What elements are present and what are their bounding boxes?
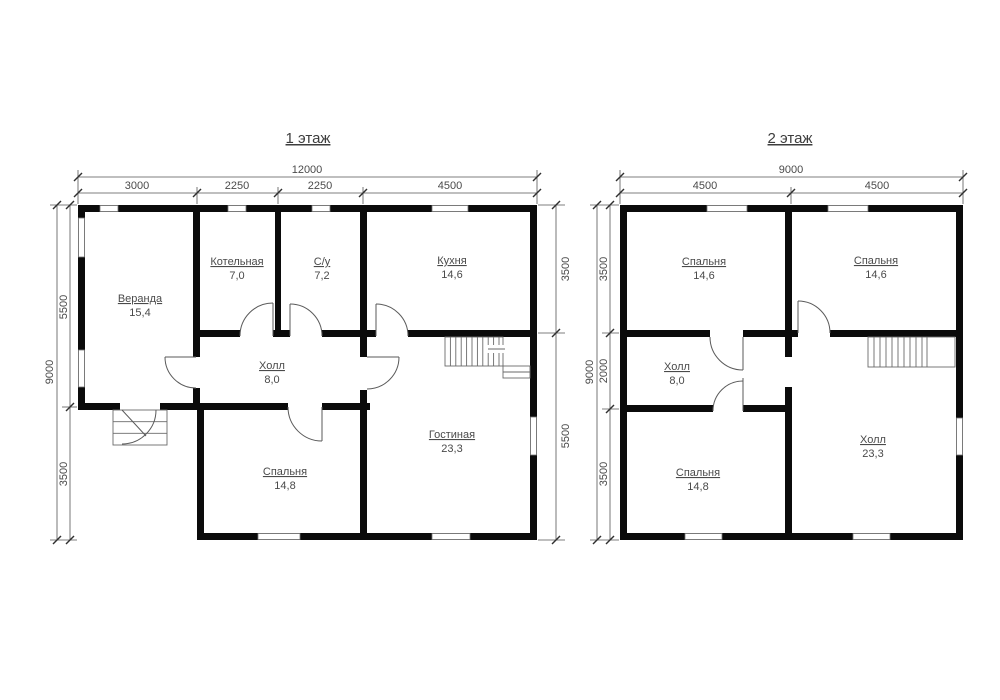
dim-label: 4500 xyxy=(865,180,889,192)
window xyxy=(707,206,747,212)
door-bedroom2 xyxy=(798,301,830,333)
room-area: 8,0 xyxy=(669,375,684,387)
room-label-bedroom1: Спальня 14,6 xyxy=(682,256,726,282)
room-label-hall-small: Холл 8,0 xyxy=(664,361,690,387)
floor2-dim-left: 9000 3500 2000 3500 xyxy=(584,201,619,544)
window xyxy=(79,350,85,387)
room-name: Веранда xyxy=(118,293,163,305)
floor1-dim-left: 9000 5500 3500 xyxy=(44,201,77,544)
room-label-kitchen: Кухня 14,6 xyxy=(437,255,466,281)
room-name: Спальня xyxy=(682,256,726,268)
dim-label: 9000 xyxy=(779,164,803,176)
door-arc xyxy=(288,407,322,441)
room-name: С/у xyxy=(314,256,331,268)
room-area: 23,3 xyxy=(441,443,462,455)
window xyxy=(228,206,246,212)
door-veranda-hall xyxy=(165,357,196,388)
dim-label: 3000 xyxy=(125,180,149,192)
door-hall-living xyxy=(367,357,399,389)
room-area: 14,8 xyxy=(687,481,708,493)
window xyxy=(957,418,963,455)
room-name: Спальня xyxy=(854,255,898,267)
door-veranda-exterior xyxy=(113,410,167,445)
wall-veranda-right xyxy=(193,205,200,403)
dim-label: 2000 xyxy=(598,359,610,383)
floor2-staircase xyxy=(868,337,955,367)
door-bedroom1-hall xyxy=(710,337,743,370)
room-area: 14,6 xyxy=(693,270,714,282)
door-bathroom xyxy=(290,304,322,336)
dim-label: 4500 xyxy=(438,180,462,192)
dim-label: 5500 xyxy=(58,295,70,319)
door-arc xyxy=(165,357,196,388)
dim-label: 3500 xyxy=(598,257,610,281)
floor2-dim-top: 9000 4500 4500 xyxy=(616,164,967,204)
room-label-hall: Холл 8,0 xyxy=(259,360,285,386)
room-area: 14,6 xyxy=(865,269,886,281)
door-boiler xyxy=(240,303,273,336)
stair-outline xyxy=(868,337,955,367)
window xyxy=(312,206,330,212)
door-arc xyxy=(798,301,830,333)
floor2-doors xyxy=(710,301,830,411)
door-arc xyxy=(367,357,399,389)
floor2-plan: 2 этаж xyxy=(584,130,967,544)
window xyxy=(432,534,470,540)
room-area: 15,4 xyxy=(129,307,150,319)
porch-steps xyxy=(113,410,167,445)
room-area: 14,6 xyxy=(441,269,462,281)
dim-label: 9000 xyxy=(584,360,596,384)
wall-boiler-bathroom xyxy=(275,205,281,336)
room-name: Спальня xyxy=(676,467,720,479)
dim-label: 3500 xyxy=(58,462,70,486)
room-label-hall-big: Холл 23,3 xyxy=(860,434,886,460)
wall-outer-left xyxy=(620,205,627,540)
window xyxy=(258,534,300,540)
floorplan-drawing: 1 этаж xyxy=(0,0,1000,700)
dim-label: 3500 xyxy=(598,462,610,486)
wall-veranda-hall-bottom xyxy=(78,403,370,410)
door-arc xyxy=(290,304,322,336)
floor1-dim-right: 3500 5500 xyxy=(538,201,572,544)
door-arc xyxy=(713,381,743,411)
wall-outer-right xyxy=(530,205,537,540)
room-name: Холл xyxy=(860,434,886,446)
door-kitchen xyxy=(376,304,408,336)
door-hall-bedroom3 xyxy=(713,378,743,411)
room-name: Холл xyxy=(259,360,285,372)
wall-hall-living xyxy=(360,336,367,540)
door-arc xyxy=(376,304,408,336)
door-arc xyxy=(710,337,743,370)
room-label-living: Гостиная 23,3 xyxy=(429,429,475,455)
dim-label: 3500 xyxy=(560,257,572,281)
window xyxy=(79,218,85,257)
floor1-walls xyxy=(78,205,537,540)
wall-bathroom-kitchen xyxy=(360,205,367,336)
door-arc xyxy=(240,303,273,336)
window xyxy=(853,534,890,540)
floor1-room-labels: Веранда 15,4 Котельная 7,0 С/у 7,2 Кухня… xyxy=(118,255,475,492)
wall-bedrooms-bottom xyxy=(620,330,963,337)
room-area: 8,0 xyxy=(264,374,279,386)
floor1-plan: 1 этаж xyxy=(44,130,572,544)
wall-bedroom-left xyxy=(197,403,204,540)
dim-label: 2250 xyxy=(308,180,332,192)
floor1-dim-top: 12000 3000 2250 2250 4500 xyxy=(74,164,541,204)
room-label-bedroom2: Спальня 14,6 xyxy=(854,255,898,281)
room-label-bedroom: Спальня 14,8 xyxy=(263,466,307,492)
window xyxy=(432,206,468,212)
room-label-bathroom: С/у 7,2 xyxy=(314,256,331,282)
dim-label: 2250 xyxy=(225,180,249,192)
floor1-staircase xyxy=(445,337,530,378)
floor2-title: 2 этаж xyxy=(768,130,813,147)
wall-hall-bottom xyxy=(620,405,792,412)
room-name: Котельная xyxy=(210,256,263,268)
floorplan-canvas: 1 этаж xyxy=(0,0,1000,700)
room-label-veranda: Веранда 15,4 xyxy=(118,293,163,319)
room-label-boiler: Котельная 7,0 xyxy=(210,256,263,282)
room-area: 7,0 xyxy=(229,270,244,282)
room-name: Кухня xyxy=(437,255,466,267)
window xyxy=(531,417,537,455)
window xyxy=(685,534,722,540)
room-area: 23,3 xyxy=(862,448,883,460)
room-name: Гостиная xyxy=(429,429,475,441)
room-name: Холл xyxy=(664,361,690,373)
room-area: 7,2 xyxy=(314,270,329,282)
window xyxy=(100,206,118,212)
window xyxy=(828,206,868,212)
room-area: 14,8 xyxy=(274,480,295,492)
floor1-windows xyxy=(79,206,537,540)
floor1-title: 1 этаж xyxy=(286,130,331,147)
dim-label: 9000 xyxy=(44,360,56,384)
wall-mid-horizontal xyxy=(197,330,537,337)
dim-ticks xyxy=(53,201,74,544)
floor2-room-labels: Спальня 14,6 Спальня 14,6 Холл 8,0 Холл … xyxy=(664,255,898,493)
dim-label: 5500 xyxy=(560,424,572,448)
wall-mid-vertical xyxy=(785,205,792,540)
room-name: Спальня xyxy=(263,466,307,478)
dim-label: 12000 xyxy=(292,164,323,176)
room-label-bedroom3: Спальня 14,8 xyxy=(676,467,720,493)
door-hall-bedroom xyxy=(288,407,322,441)
floor2-windows xyxy=(685,206,963,540)
wall-outer-right xyxy=(956,205,963,540)
dim-label: 4500 xyxy=(693,180,717,192)
